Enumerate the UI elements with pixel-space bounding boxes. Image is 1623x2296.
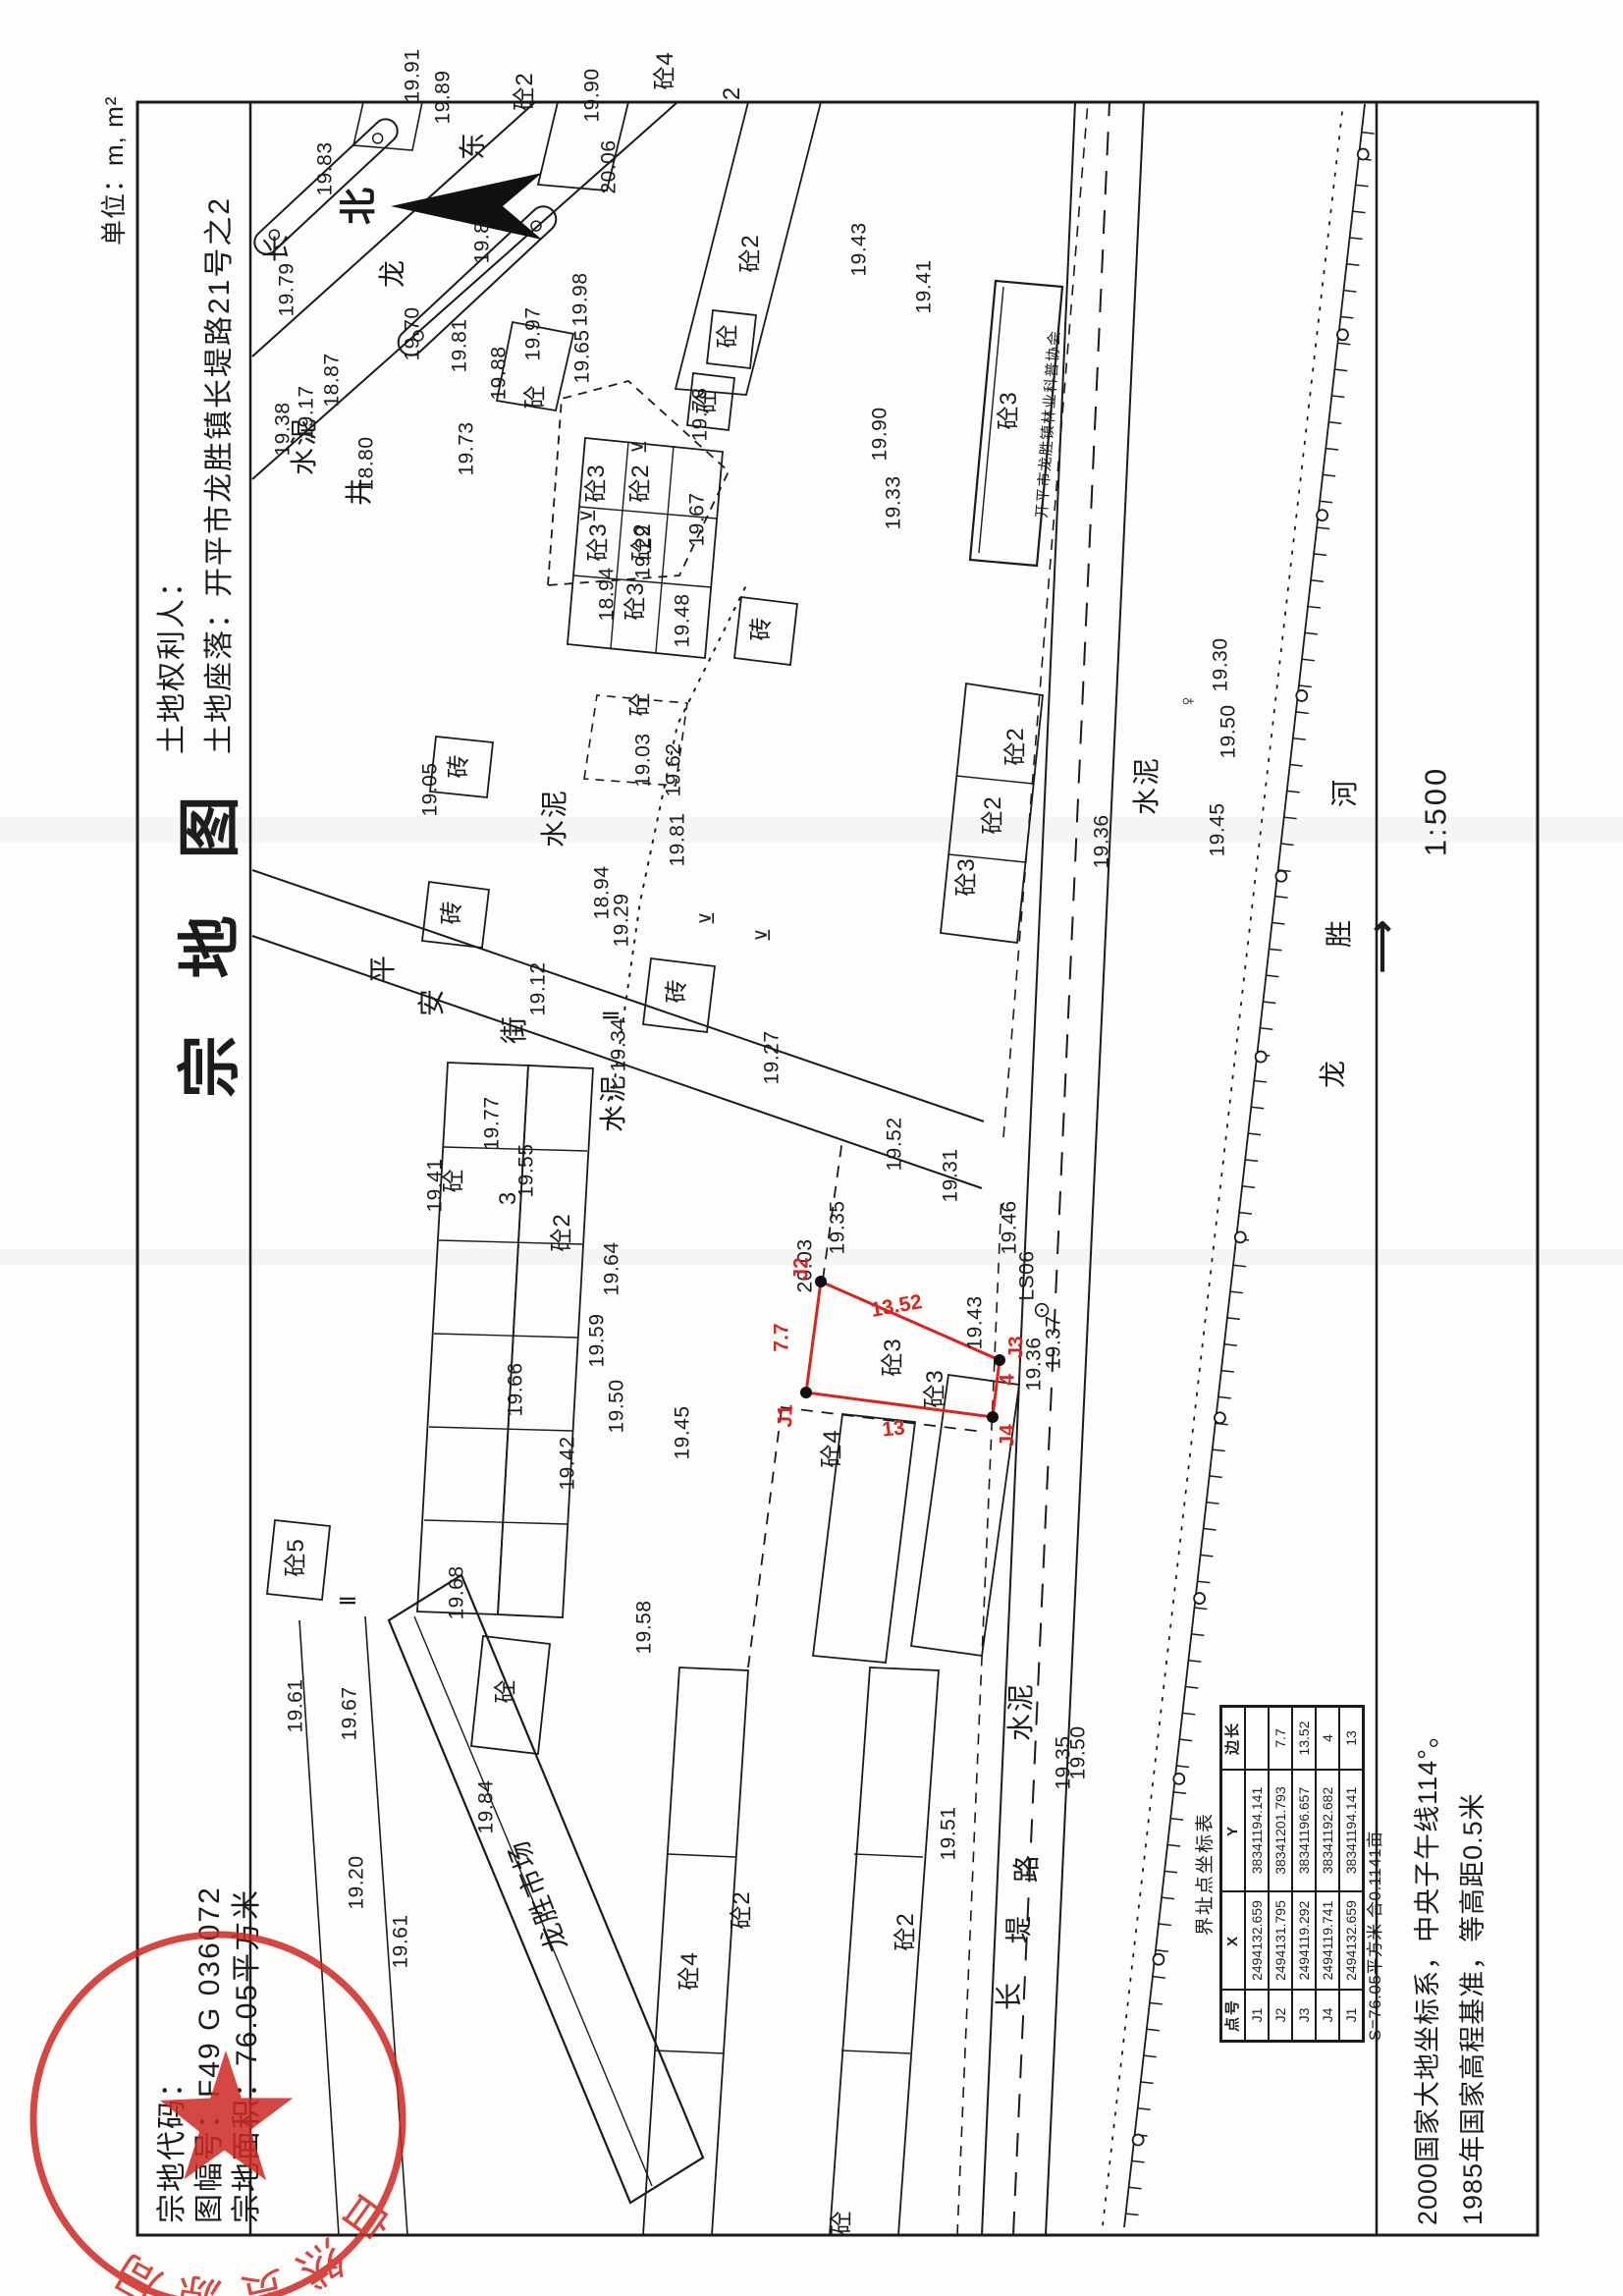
map-label: J4 [998,1424,1018,1447]
map-label: 龙 [379,258,406,288]
map-label: 19.58 [634,1600,655,1654]
map-label: 19.67 [340,1686,360,1740]
map-label: 水泥 [1007,1682,1035,1741]
map-label: 19.61 [286,1678,306,1732]
map-label: 19.66 [506,1362,526,1416]
map-label: 砼2 [894,1912,918,1950]
map-label: 东 [460,131,487,160]
map-label: ⟶ [1364,920,1401,973]
land-owner-line: 土地权利人： [147,566,190,754]
map-label: 19.38 [273,402,294,456]
map-label: 4 [998,1374,1018,1386]
map-label: 砼5 [285,1538,308,1576]
map-label: 19.90 [582,68,603,122]
map-label: 13 [881,1417,905,1440]
map-label: 砼2 [551,1213,574,1251]
table-cell: 7.7 [1269,1707,1292,1770]
map-scale: 1:500 [1421,766,1451,857]
table-cell: J4 [1316,1990,1339,2041]
map-label: 19.51 [939,1806,959,1860]
map-label: 河 [1331,778,1359,807]
map-label: 19.73 [457,421,477,475]
map-label: ⊻ [579,509,599,523]
map-label: 19.37 [1044,1315,1064,1369]
north-label: 北 [341,188,378,225]
map-label: 砼2 [730,1890,754,1929]
map-label: 砼2 [629,464,653,502]
scan-artifact [0,817,1623,843]
map-label: 街 [501,1014,528,1044]
map-label: 19.59 [587,1313,608,1367]
map-label: 19.70 [403,306,423,360]
map-label: 堤 [1005,1914,1033,1943]
table-cell: 2494119.741 [1316,1891,1339,1990]
table-cell: 4 [1316,1707,1339,1770]
map-label: 19.35 [828,1200,848,1254]
map-label: 19.90 [870,407,891,461]
north-arrow-icon [391,173,542,240]
map-label: 砖 [666,979,689,1004]
map-label: 砼4 [678,1951,702,1990]
map-label: 砼3 [585,464,609,502]
map-label: 砖 [448,754,471,779]
table-cell: 38341192.682 [1316,1770,1339,1891]
map-label: ⊻ [630,440,650,455]
map-label: 18.94 [597,567,618,621]
map-label: Ⅱ [601,1011,622,1021]
map-label: 平 [369,954,397,983]
map-label: 19.45 [673,1405,693,1459]
table-cell: 38341196.657 [1292,1770,1316,1891]
map-label: 水泥 [600,1073,627,1132]
table-header-cell: 点号 [1221,1990,1245,2041]
stamp-star-icon [139,2036,300,2204]
map-label: 19.50 [607,1379,627,1433]
map-label: 安 [418,987,446,1016]
table-title: 界址点坐标表 [1190,1705,1217,2043]
map-label: 19.29 [612,893,632,947]
map-label: 19.34 [609,1017,629,1071]
map-label: 砼3 [587,522,611,561]
table-cell: 38341201.793 [1269,1770,1292,1891]
map-label: 19.29 [633,524,654,578]
landscape-sheet: 宗地代码： 图幅号：F49 G 036072 宗地面积：76.05平方米 宗 地… [0,0,1623,2296]
map-label: 19.41 [425,1158,446,1212]
table-grid: 点号XY边长J12494132.65938341194.141J22494131… [1219,1705,1365,2043]
map-label: 19.79 [277,262,298,316]
map-label: 19.17 [297,385,317,439]
table-header-cell: Y [1221,1770,1245,1891]
table-header-cell: 边长 [1221,1707,1245,1770]
map-label: 19.43 [965,1295,986,1349]
map-label: 19.50 [1068,1725,1089,1779]
map-label: 19.89 [433,70,454,124]
map-label: 砼4 [821,1429,844,1467]
map-label: 19.78 [690,387,711,441]
map-label: 19.50 [1218,704,1239,758]
map-label: 19.41 [914,259,935,313]
map-label: 砼2 [514,72,537,110]
map-label: 19.68 [447,1565,467,1619]
map-label: 19.83 [315,141,336,195]
map-label: 19.42 [558,1436,578,1490]
map-label: 19.98 [570,272,591,326]
map-label: 19.55 [516,1143,537,1197]
map-label: 19.8 [472,222,493,264]
height-datum-note: 1985年国家高程基准，等高距0.5米 [1451,1792,1489,2225]
map-label: 砼3 [998,391,1021,429]
map-label: 砼2 [739,234,763,272]
table-cell: J1 [1245,1990,1269,2041]
map-label: 19.03 [633,733,654,787]
map-label: 19.43 [849,222,870,276]
table-cell: J1 [1339,1990,1363,2041]
map-label: 19.46 [1000,1200,1020,1254]
map-label: ⊻ [698,911,718,926]
map-label: 2 [721,86,744,100]
scan-artifact [0,1249,1623,1265]
map-label: 18.94 [592,865,613,919]
table-header-cell: X [1221,1891,1245,1990]
map-label: 19.30 [1211,637,1231,691]
map-label: 19.97 [523,306,544,360]
map-label: 19.65 [572,329,593,383]
table-cell: 2494132.659 [1339,1891,1363,1990]
unit-label: 单位：m, m² [94,96,131,246]
map-label: ⊻ [754,928,774,943]
table-cell: J3 [1292,1990,1316,2041]
table-cell: J2 [1269,1990,1292,2041]
map-label: 19.88 [489,346,510,400]
map-label: 砼 [495,1679,518,1704]
map-label: 砼3 [882,1338,905,1376]
map-label: 龙 [1320,1059,1347,1088]
datum-note: 2000国家大地坐标系，中央子午线114°。 [1406,1721,1444,2225]
map-label: 砖 [750,617,774,641]
map-label: 18.87 [322,353,343,407]
map-label: ⊙ [1031,1301,1053,1319]
map-label: 砼 [524,385,548,410]
map-label: J1 [776,1404,796,1427]
map-label: 20.06 [599,139,620,193]
map-label: 砼 [717,324,740,349]
map-label: 长 [996,1981,1023,2010]
map-label: 砼2 [1004,727,1028,765]
table-cell [1245,1707,1269,1770]
map-label: 19.48 [673,593,693,647]
map-label: 19.62 [664,742,684,796]
land-location-line: 土地座落：开平市龙胜镇长堤路21号之2 [194,196,238,754]
map-label: 水泥 [1133,756,1161,815]
map-label: 路 [1013,1853,1041,1883]
map-label: 19.27 [762,1030,783,1084]
area-summary: S=76.05平方米 合0.1141亩 [1361,1831,1385,2041]
map-label: J3 [1006,1336,1027,1358]
map-label: Ⅱ [338,1596,359,1607]
map-label: 18.80 [356,436,377,490]
map-label: 19.05 [420,762,441,816]
map-label: 19.20 [347,1855,367,1909]
map-label: 19.31 [941,1148,961,1202]
map-label: 砖 [441,901,464,925]
table-cell: 38341194.141 [1339,1770,1363,1891]
boundary-point-table: 界址点坐标表 点号XY边长J12494132.65938341194.141J2… [1190,1705,1365,2043]
map-label: 砼3 [955,857,979,896]
map-label: 19.67 [687,492,708,546]
map-label: 胜 [1325,918,1353,948]
map-label: ♀ [1177,693,1199,710]
map-label: 19.84 [476,1779,497,1833]
table-cell: 2494132.659 [1245,1891,1269,1990]
map-label: 19.81 [450,318,470,372]
map-label: 19.33 [884,475,904,529]
map-label: 砼 [831,2211,854,2235]
map-label: 砼3 [624,581,648,620]
table-cell: 38341194.141 [1245,1770,1269,1891]
table-cell: 2494131.795 [1269,1891,1292,1990]
map-label: 砼 [443,1169,466,1193]
map-label: 19.91 [403,48,423,102]
map-label: 砼 [629,692,653,717]
scanned-parcel-map-page: 宗地代码： 图幅号：F49 G 036072 宗地面积：76.05平方米 宗 地… [0,0,1623,2296]
map-label: 7.7 [772,1323,792,1351]
table-cell: 13 [1339,1707,1363,1770]
table-cell: 13.52 [1292,1707,1316,1770]
map-label: 19.12 [528,961,549,1015]
map-label: 长 [263,233,291,262]
table-cell: 2494119.292 [1292,1891,1316,1990]
map-label: 砼4 [654,51,677,89]
map-label: 砼3 [924,1369,947,1407]
map-label: 19.77 [482,1096,503,1150]
map-label: 19.52 [885,1117,905,1171]
